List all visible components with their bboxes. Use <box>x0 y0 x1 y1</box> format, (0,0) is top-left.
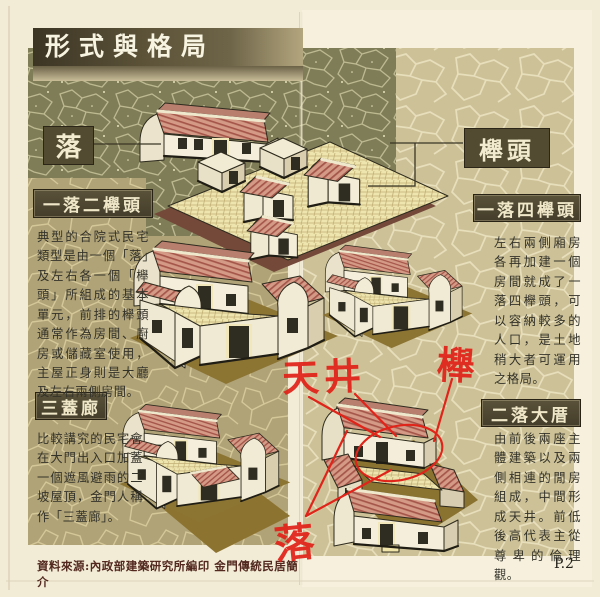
handwritten-luo: 落 <box>271 509 317 571</box>
page-number: P.2 <box>554 556 574 572</box>
source-credit: 資料來源:內政部建築研究所編印 金門傳統民居簡介 <box>37 558 307 590</box>
label-jutou: 櫸頭 <box>464 128 550 168</box>
section-body-yi-luo-er-jutou: 典型的合院式民宅類型是由一個「落」及左右各一個「櫸頭」所組成的基本單元，前排的櫸… <box>37 228 149 403</box>
section-body-yi-luo-si-jutou: 左右兩側廂房各再加建一個房間就成了一落四櫸頭，可以容納較多的人口，是土地稍大者可… <box>494 234 581 389</box>
label-luo: 落 <box>43 126 94 165</box>
handwritten-ju: 櫸 <box>436 334 477 391</box>
title-gradient-band <box>230 28 303 66</box>
handwritten-tianjing: 天井 <box>281 346 367 403</box>
section-heading-yi-luo-er-jutou: 一落二櫸頭 <box>33 189 153 218</box>
section-heading-yi-luo-si-jutou: 一落四櫸頭 <box>473 194 581 222</box>
brochure-page: 形式與格局 落 櫸頭 一落二櫸頭 一落四櫸頭 三蓋廊 二落大厝 典型的合院式民宅… <box>0 0 600 597</box>
section-heading-er-luo-da-cuo: 二落大厝 <box>481 399 581 427</box>
page-title: 形式與格局 <box>33 28 230 66</box>
section-body-san-gai-lang: 比較講究的民宅會在大門出入口加蓋一個遮風避雨的二坡屋頂，金門人稱作「三蓋廊」。 <box>37 430 143 527</box>
title-underline-band <box>33 66 303 81</box>
